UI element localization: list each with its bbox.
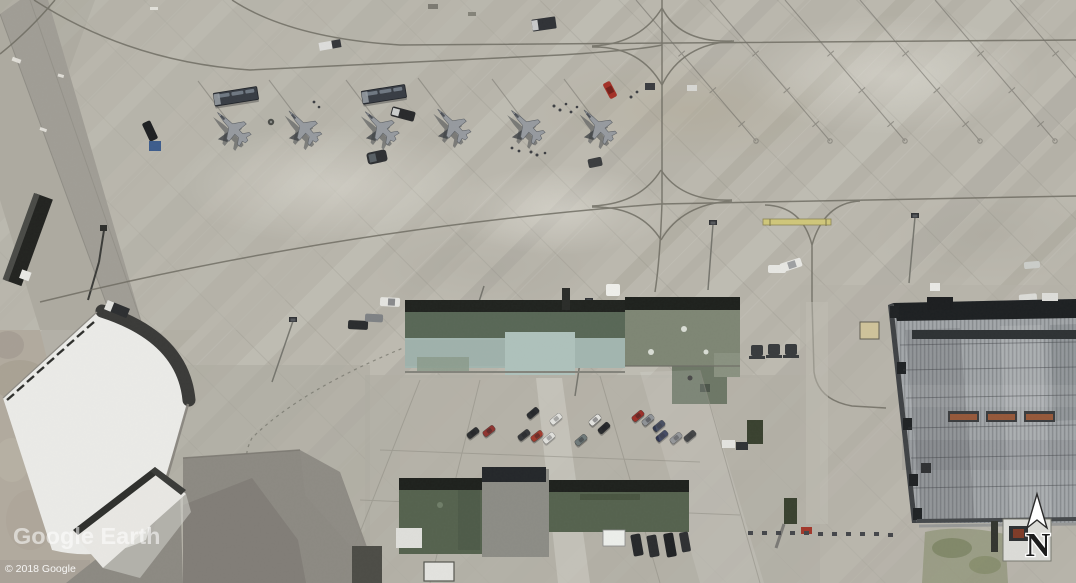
- svg-text:N: N: [1026, 527, 1051, 564]
- svg-text:Google Earth: Google Earth: [13, 523, 161, 549]
- svg-text:© 2018 Google: © 2018 Google: [5, 563, 76, 575]
